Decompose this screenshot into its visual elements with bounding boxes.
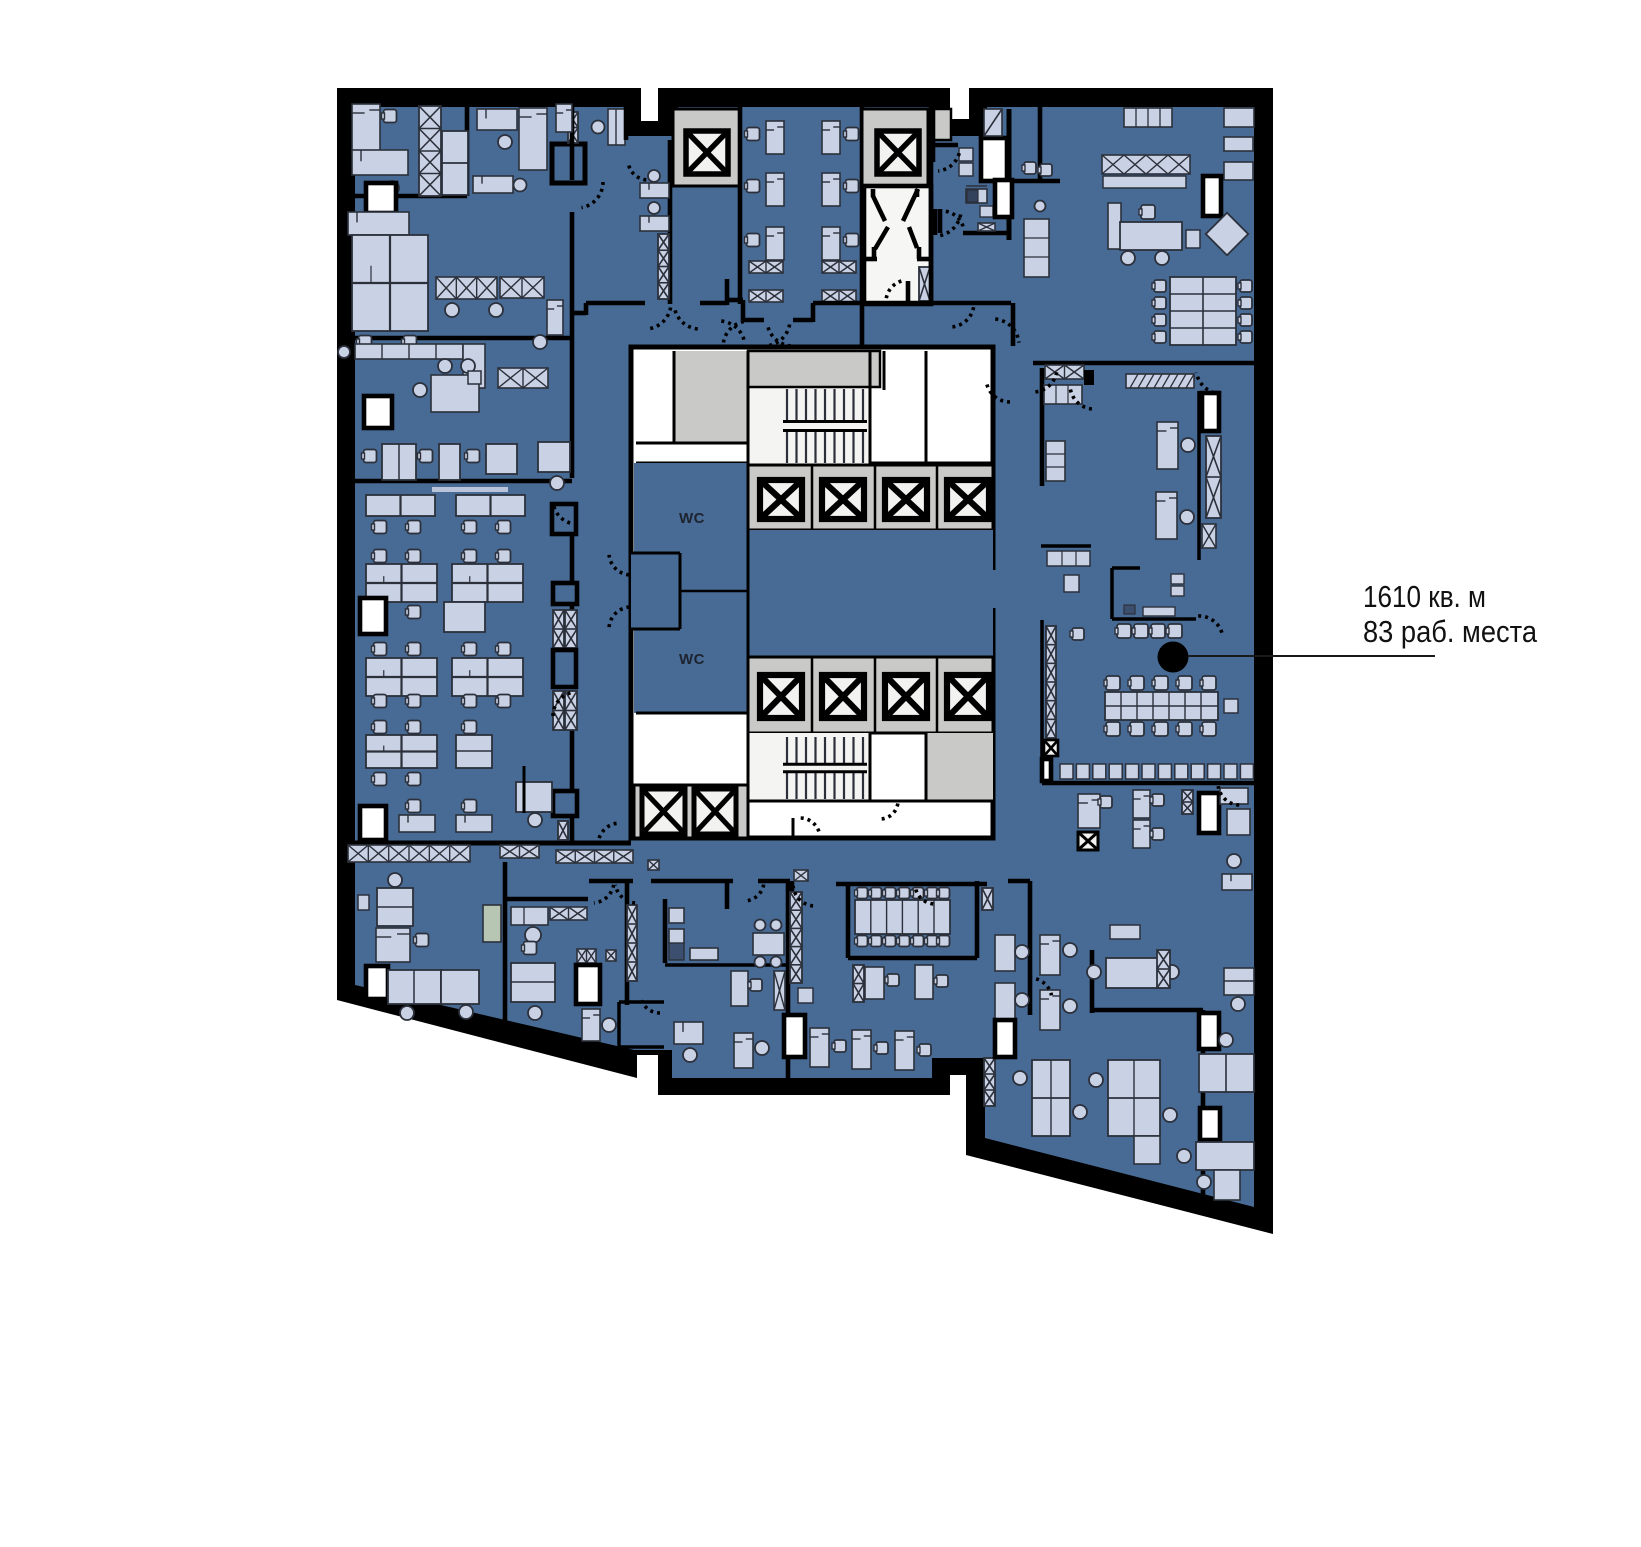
svg-text:WC: WC	[679, 651, 705, 668]
svg-text:WC: WC	[679, 510, 705, 527]
svg-text:1610 кв. м: 1610 кв. м	[1363, 579, 1486, 614]
svg-text:83 раб. места: 83 раб. места	[1363, 614, 1538, 649]
